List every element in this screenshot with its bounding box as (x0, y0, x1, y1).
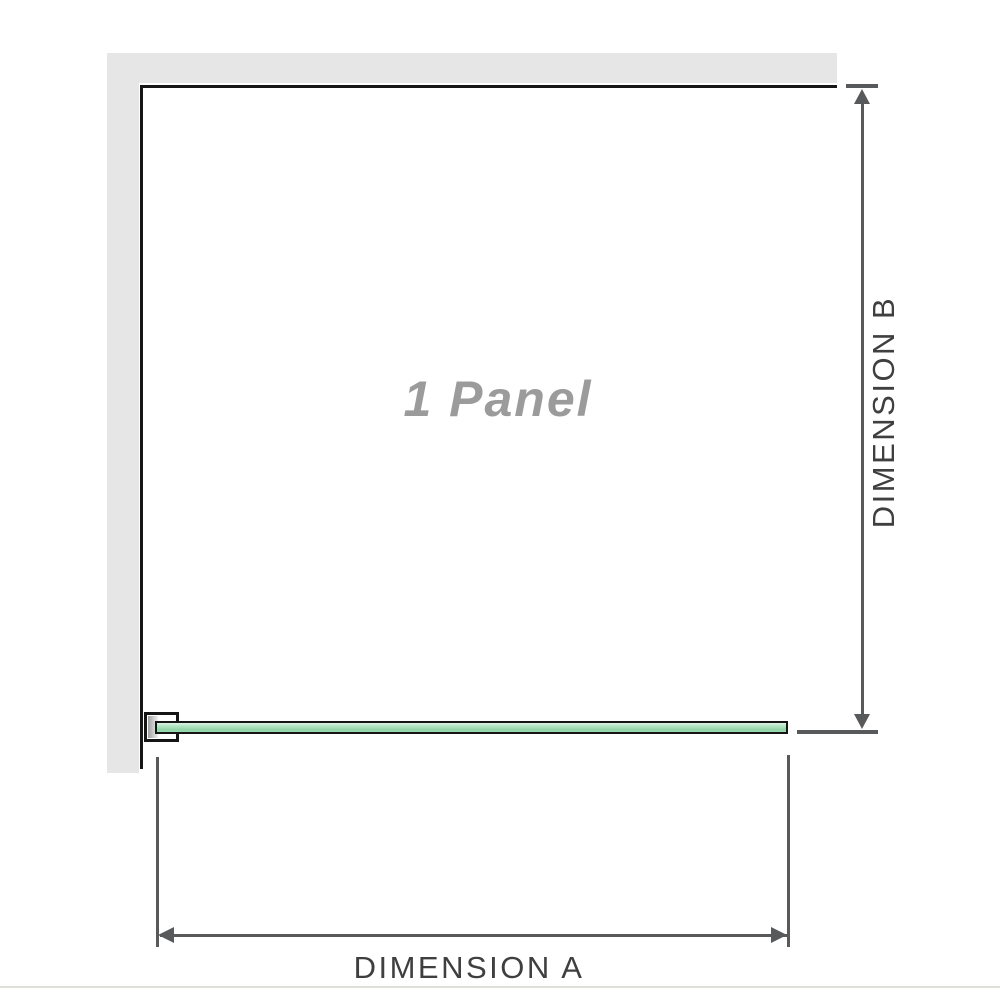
shower-panel-dimension-diagram: 1 Panel DIMENSION B DIMENSION A (0, 0, 1000, 1000)
arrow-right-icon (771, 927, 787, 943)
dimension-a-line (160, 934, 787, 937)
wall-top (108, 53, 837, 83)
wall-top-edge-line (140, 85, 837, 88)
panel-count-label: 1 Panel (348, 370, 648, 428)
wall-left (107, 53, 139, 773)
glass-panel (155, 721, 788, 734)
wall-left-edge-line (140, 85, 143, 769)
arrow-down-icon (854, 714, 870, 729)
page-divider-line (0, 986, 1000, 988)
dimension-b-label: DIMENSION B (869, 262, 899, 562)
dimension-b-bottom-tick (797, 730, 878, 734)
dimension-b-top-tick (846, 84, 878, 88)
dimension-b-line (861, 101, 864, 716)
dimension-a-extension-line-right (787, 755, 790, 947)
dimension-a-label: DIMENSION A (319, 950, 619, 986)
dimension-a-extension-line-left (156, 757, 159, 947)
